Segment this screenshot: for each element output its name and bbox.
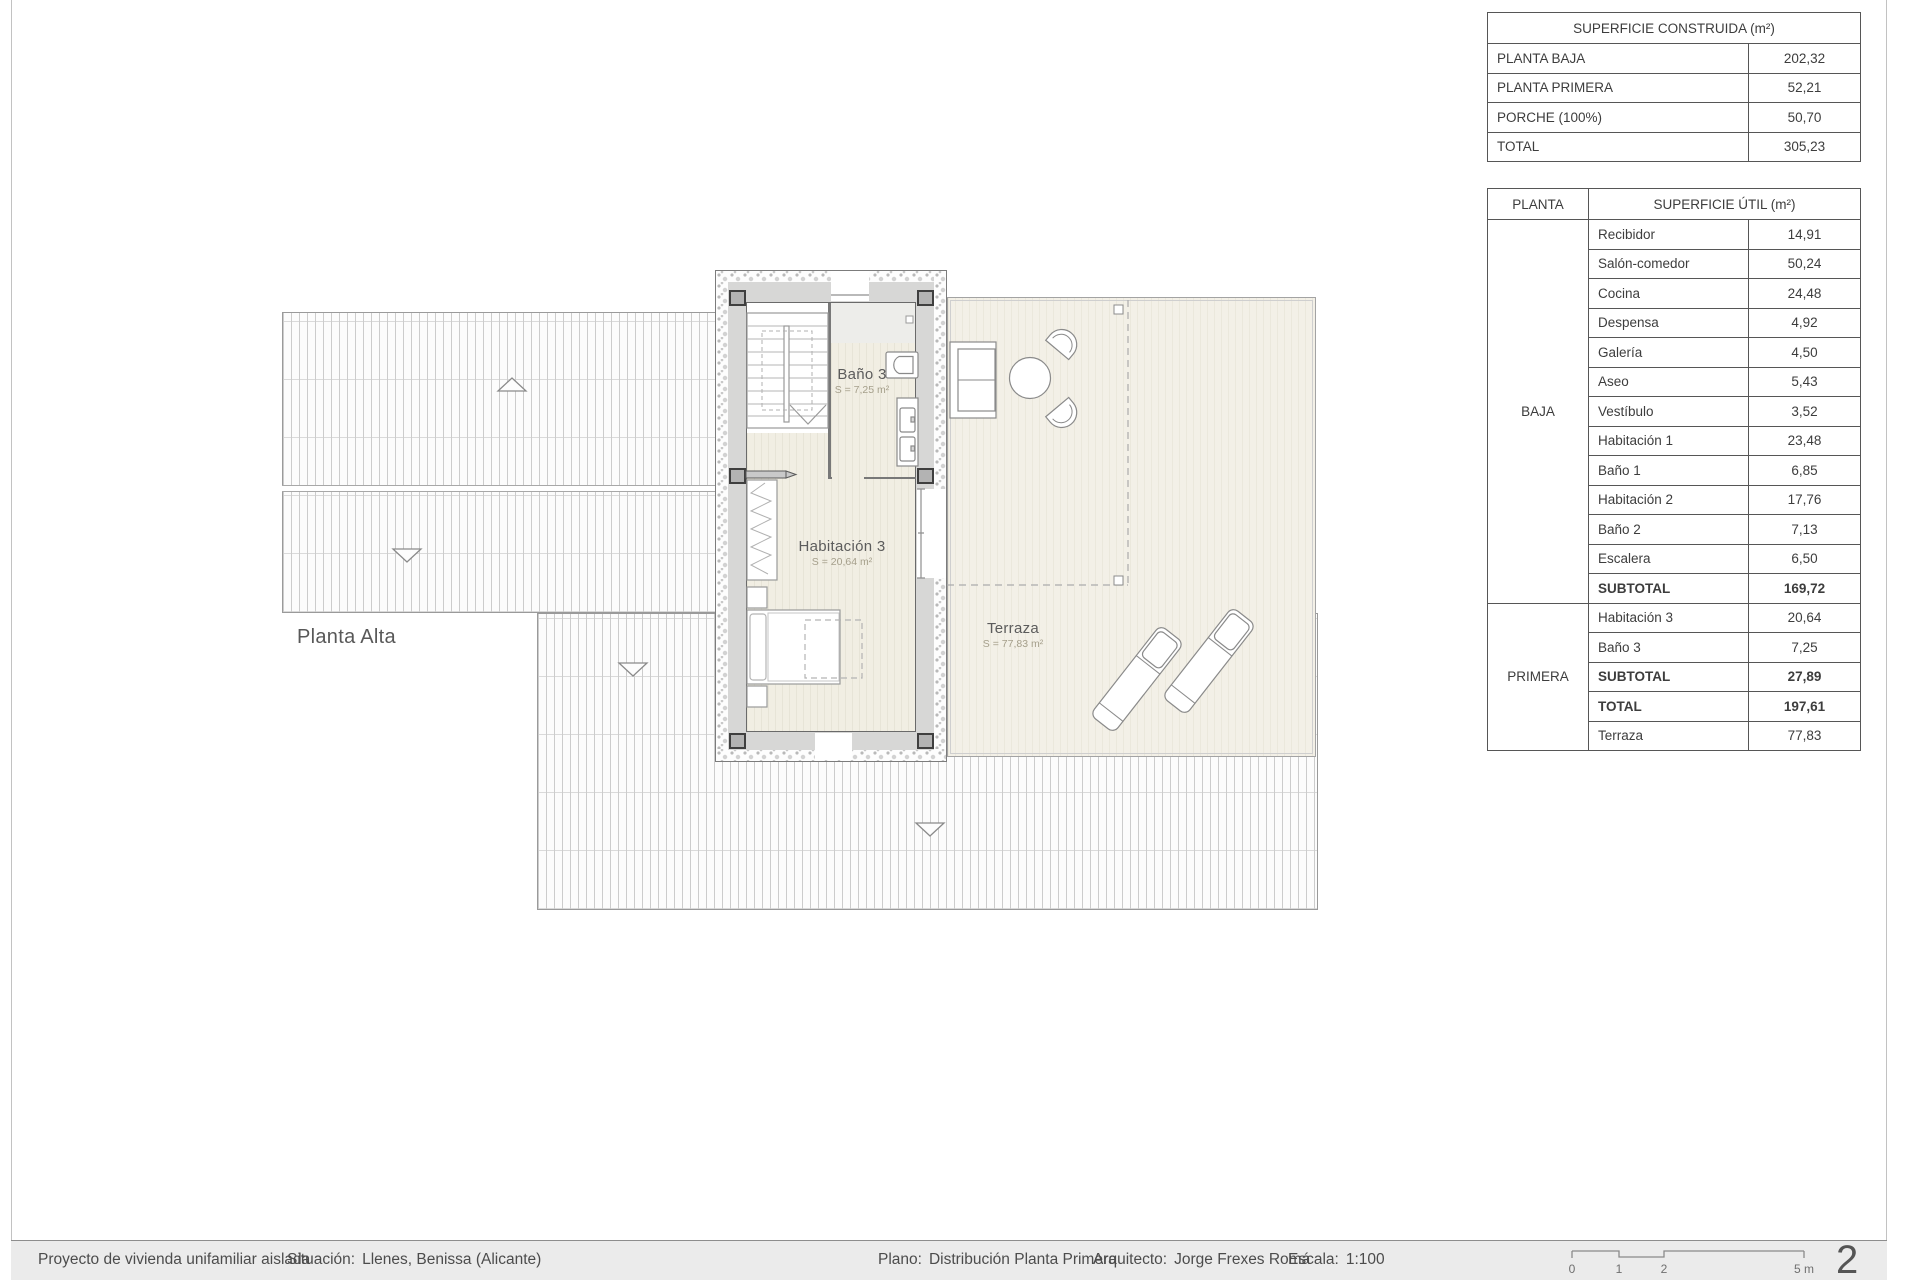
row-label-subtotal: SUBTOTAL [1589,662,1749,692]
row-value: 5,43 [1749,367,1861,397]
room-name: Habitación 3 [782,538,902,555]
plano-field: Plano:Distribución Planta Primera [878,1251,1117,1269]
graphic-scale-bar: 0 1 2 5 m [1563,1243,1823,1277]
row-label: Galería [1589,338,1749,368]
group-label-baja: BAJA [1488,220,1589,604]
page-number: 2 [1836,1238,1858,1280]
situacion-label: Situación: [287,1251,355,1268]
row-label: Habitación 2 [1589,485,1749,515]
row-value: 14,91 [1749,220,1861,250]
row-value: 17,76 [1749,485,1861,515]
scale-tick-0: 0 [1569,1262,1576,1276]
glass-door-terrace-opening [917,489,946,578]
floor-label: Planta Alta [297,626,396,649]
room-area: S = 7,25 m² [812,384,912,396]
row-label: Baño 1 [1589,456,1749,486]
column-bottom-left [729,733,746,749]
room-area: S = 20,64 m² [782,556,902,568]
row-value: 23,48 [1749,426,1861,456]
plano-value: Distribución Planta Primera [929,1251,1117,1268]
row-value-subtotal: 169,72 [1749,574,1861,604]
row-label: Despensa [1589,308,1749,338]
table-title: SUPERFICIE ÚTIL (m²) [1589,189,1861,220]
row-label: Salón-comedor [1589,249,1749,279]
row-label: Habitación 3 [1589,603,1749,633]
room-name: Baño 3 [812,366,912,383]
floor-plan-sheet: Planta Alta Baño 3 S = 7,25 m² Habitació… [0,0,1920,1280]
row-label: PLANTA PRIMERA [1488,73,1749,103]
row-label: Cocina [1589,279,1749,309]
row-value: 7,25 [1749,633,1861,663]
row-label: Escalera [1589,544,1749,574]
column-mid-right [917,468,934,484]
row-label: PORCHE (100%) [1488,103,1749,133]
row-label: Recibidor [1589,220,1749,250]
row-value: 24,48 [1749,279,1861,309]
row-label-subtotal: SUBTOTAL [1589,574,1749,604]
row-value: 6,85 [1749,456,1861,486]
row-label: TOTAL [1488,132,1749,162]
sheet-frame-right [1886,0,1887,1280]
row-value: 7,13 [1749,515,1861,545]
table-superficie-construida: SUPERFICIE CONSTRUIDA (m²) PLANTA BAJA 2… [1487,12,1861,162]
row-value: 6,50 [1749,544,1861,574]
window-top-opening [831,271,869,301]
room-name: Terraza [953,620,1073,637]
row-label: Habitación 1 [1589,426,1749,456]
row-value: 50,24 [1749,249,1861,279]
scale-tick-1: 1 [1616,1262,1623,1276]
roof-left [282,312,717,613]
roof-ridge-line [282,485,717,492]
row-value: 50,70 [1749,103,1861,133]
row-value: 305,23 [1749,132,1861,162]
row-value: 77,83 [1749,721,1861,751]
row-value-subtotal: 27,89 [1749,662,1861,692]
row-value: 52,21 [1749,73,1861,103]
row-value: 3,52 [1749,397,1861,427]
sheet-frame-left [11,0,12,1280]
row-value: 4,92 [1749,308,1861,338]
row-label: Vestíbulo [1589,397,1749,427]
shower-zone [830,303,915,343]
room-area: S = 77,83 m² [953,638,1073,650]
escala-field: Escala:1:100 [1288,1251,1385,1269]
row-label: Terraza [1589,721,1749,751]
terrace-floor [947,297,1316,757]
row-label: Baño 2 [1589,515,1749,545]
arquitecto-field: Arquitecto:Jorge Frexes Romá [1093,1251,1310,1269]
row-value: 20,64 [1749,603,1861,633]
room-label-habitacion3: Habitación 3 S = 20,64 m² [782,538,902,568]
scale-tick-2: 2 [1661,1262,1668,1276]
column-top-left [729,290,746,306]
arquitecto-label: Arquitecto: [1093,1251,1167,1268]
table-title: SUPERFICIE CONSTRUIDA (m²) [1488,13,1861,44]
row-label: Aseo [1589,367,1749,397]
situacion-field: Situación:Llenes, Benissa (Alicante) [287,1251,541,1269]
row-label: PLANTA BAJA [1488,44,1749,74]
door-bottom-opening [815,733,852,760]
project-title: Proyecto de vivienda unifamiliar aislada [38,1251,310,1269]
room-label-terraza: Terraza S = 77,83 m² [953,620,1073,650]
row-value: 202,32 [1749,44,1861,74]
row-value: 4,50 [1749,338,1861,368]
escala-value: 1:100 [1346,1251,1385,1268]
plano-label: Plano: [878,1251,922,1268]
row-label-total: TOTAL [1589,692,1749,722]
scale-tick-5m: 5 m [1794,1262,1814,1276]
wall-gray-left [728,282,746,750]
col-header-planta: PLANTA [1488,189,1589,220]
column-mid-left [729,468,746,484]
column-top-right [917,290,934,306]
escala-label: Escala: [1288,1251,1339,1268]
row-label: Baño 3 [1589,633,1749,663]
wall-stone-left [716,271,728,761]
room-label-bano3: Baño 3 S = 7,25 m² [812,366,912,396]
group-label-primera: PRIMERA [1488,603,1589,751]
column-bottom-right [917,733,934,749]
situacion-value: Llenes, Benissa (Alicante) [362,1251,541,1268]
row-value-total: 197,61 [1749,692,1861,722]
table-superficie-util: PLANTA SUPERFICIE ÚTIL (m²) BAJA Recibid… [1487,188,1861,751]
